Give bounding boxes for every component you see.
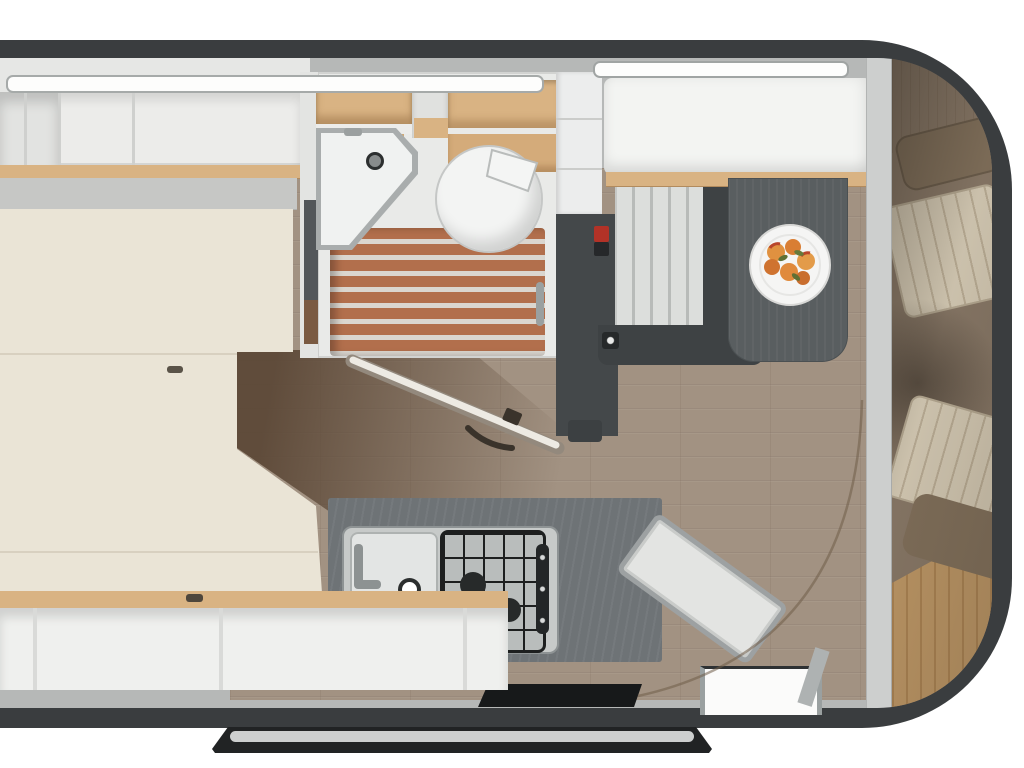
frame-latch <box>602 332 619 349</box>
heater-indicator <box>594 226 609 242</box>
wardrobe-shelves <box>556 72 602 214</box>
cabinet-foot <box>568 420 602 442</box>
overhead-locker-open <box>0 92 58 165</box>
washbasin-drain <box>366 152 384 170</box>
dining-table <box>728 178 848 362</box>
shelf-divider <box>219 608 223 690</box>
cab-glass-overlay <box>892 58 992 708</box>
bench-seat-cushion <box>604 78 872 175</box>
washroom-side-trim <box>304 300 318 344</box>
shelf-divider <box>463 608 467 690</box>
shelf-divider <box>556 118 602 120</box>
washroom-side-cabinet <box>304 200 318 300</box>
campervan-floorplan <box>0 0 1024 768</box>
locker-divider <box>132 92 135 165</box>
mattress-seam <box>0 551 318 553</box>
locker-divider <box>24 92 27 165</box>
shelf-handle <box>186 594 203 602</box>
washroom-niche-shelf <box>414 118 448 138</box>
cab-partition <box>866 58 893 708</box>
heater-indicator-base <box>594 242 609 256</box>
locker-divider <box>58 92 61 165</box>
bed-head-shelf <box>0 178 297 210</box>
shelf-divider <box>556 168 602 170</box>
headboard-wood-trim <box>0 165 300 179</box>
washroom-door-handle <box>536 282 544 326</box>
kitchen-faucet-spout <box>354 580 381 589</box>
toilet <box>435 145 543 253</box>
mattress-seam <box>0 353 237 355</box>
bed-strap-handle <box>167 366 183 373</box>
lower-shelf-face <box>0 608 508 690</box>
driver-cab <box>856 58 992 708</box>
ceiling-light-left <box>6 75 544 93</box>
hob-control-panel <box>536 544 549 634</box>
shelf-divider <box>33 608 37 690</box>
seat-front-panel <box>615 182 705 328</box>
washbasin-faucet-icon <box>344 128 362 136</box>
cab-room <box>892 58 992 708</box>
lower-shelf-wood-top <box>0 591 508 609</box>
exterior-step-tread <box>230 731 694 742</box>
ceiling-light-right <box>593 61 849 78</box>
